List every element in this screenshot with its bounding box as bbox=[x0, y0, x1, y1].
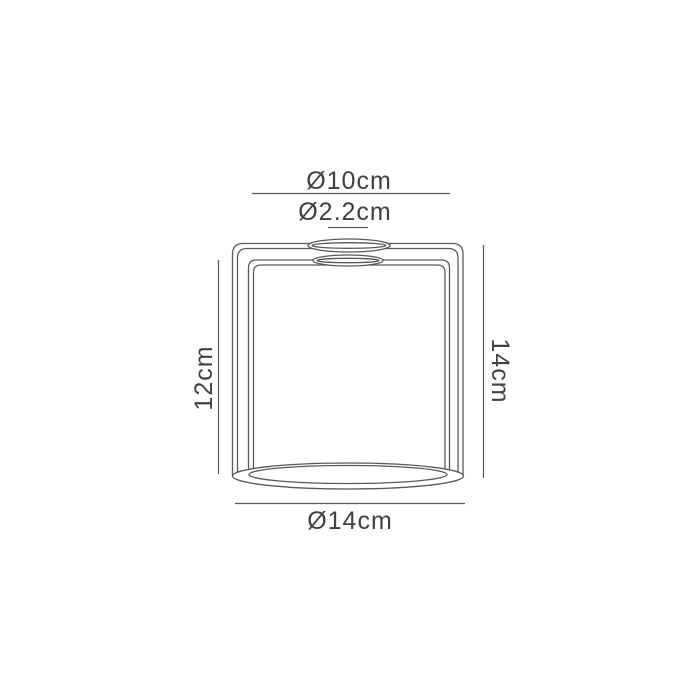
lampshade-dimension-drawing: Ø10cm Ø2.2cm 12cm 14cm Ø14cm bbox=[0, 0, 700, 700]
inner-frame-outer-stroke bbox=[249, 260, 450, 471]
overall-height-label: 14cm bbox=[486, 338, 514, 403]
dimension-diagram-canvas: Ø10cm Ø2.2cm 12cm 14cm Ø14cm bbox=[0, 0, 700, 700]
base-diameter-label: Ø14cm bbox=[307, 507, 393, 535]
inner-height-label: 12cm bbox=[190, 345, 218, 410]
bottom-rim-inner-ellipse bbox=[249, 466, 447, 484]
outer-frame-outer-stroke bbox=[233, 244, 464, 477]
fitting-hole-diameter-label: Ø2.2cm bbox=[298, 198, 392, 226]
top-ring-upper-ellipse bbox=[308, 239, 390, 252]
outer-frame-inner-stroke bbox=[238, 249, 459, 475]
top-ring-diameter-label: Ø10cm bbox=[306, 167, 392, 195]
top-ring-lower-ellipse bbox=[313, 255, 383, 266]
inner-frame-inner-stroke bbox=[254, 265, 446, 469]
